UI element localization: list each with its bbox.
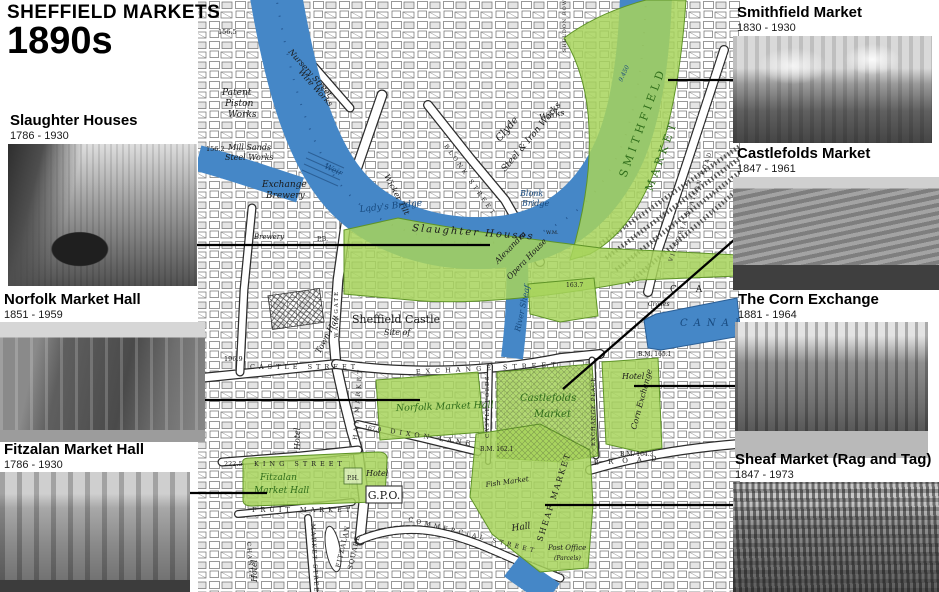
castle-folds-label: CASTLE FOLDS — [485, 375, 491, 438]
norfolk-market-dates: 1851 - 1959 — [4, 309, 63, 321]
spot-156-2: 156.2 — [206, 145, 225, 153]
fitzalan-market-dates: 1786 - 1930 — [4, 459, 63, 471]
pb-label: P.B. — [317, 236, 328, 243]
corn-exchange-dates: 1881 - 1964 — [738, 309, 797, 321]
hotel-label-3: Hotel — [293, 427, 302, 451]
slaughter-houses-dates: 1786 - 1930 — [10, 130, 69, 142]
fitzalan-market-photo — [0, 472, 190, 592]
map-content: PatentPistonWorks Mill SandsSteel Works … — [198, 0, 748, 592]
spot-196-9: 196.9 — [224, 355, 243, 363]
page-subtitle: 1890s — [7, 20, 113, 63]
sheldon-row-label: SHELDON ROW — [562, 0, 568, 52]
castlefolds-market-dates: 1847 - 1961 — [737, 163, 796, 175]
slaughter-houses-title: Slaughter Houses — [10, 112, 138, 129]
smithfield-market-dates: 1830 - 1930 — [737, 22, 796, 34]
mill-sands-label: Mill SandsSteel Works — [225, 143, 274, 162]
sheffield-castle-label: Sheffield Castle — [352, 313, 440, 326]
castlefolds-market-title: Castlefolds Market — [737, 145, 870, 162]
fruit-market-label: FRUIT MARKET — [252, 506, 354, 514]
corn-exchange-photo — [735, 322, 928, 458]
ph-label: P.H. — [347, 475, 359, 482]
slaughter-houses-photo — [8, 144, 197, 286]
police-offices-block — [268, 289, 324, 330]
hotel-label-1: Hotel — [621, 372, 645, 381]
norfolk-market-title: Norfolk Market Hall — [4, 291, 141, 308]
hotel-label-2: Hotel — [365, 469, 389, 478]
spot-163-7: 163.7 — [566, 282, 583, 289]
wm-label: W.M. — [546, 230, 559, 236]
smithfield-market-photo — [733, 36, 932, 143]
smithfield-market-title: Smithfield Market — [737, 4, 862, 21]
sheffield-markets-infographic: PatentPistonWorks Mill SandsSteel Works … — [0, 0, 939, 592]
castle-street-label: CASTLE STREET — [250, 363, 359, 371]
slaughter-houses-annex — [528, 278, 598, 322]
spot-156-5: 156.5 — [218, 28, 237, 36]
waingate-label: WAINGATE — [334, 290, 340, 338]
sheaf-market-title: Sheaf Market (Rag and Tag) — [735, 451, 931, 468]
king-street-label: KING STREET — [254, 460, 346, 468]
sheaf-market-dates: 1847 - 1973 — [735, 469, 794, 481]
corn-exchange-title: The Corn Exchange — [738, 291, 879, 308]
norfolk-market-photo — [0, 322, 205, 442]
brewery-label: Brewery — [253, 233, 285, 241]
bm-165-label: B.M. 165.1 — [638, 351, 671, 358]
gpo-label: G.P.O. — [368, 489, 400, 502]
site-of-label: Site of — [384, 328, 412, 337]
king-street-number: 222.5 — [224, 460, 243, 468]
exchange-place-label: EXCHANGE PLACE — [591, 377, 597, 446]
exchange-brewery-label: ExchangeBrewery — [261, 180, 307, 201]
bm-162-label: B.M. 162.1 — [480, 446, 513, 453]
castlefolds-market-photo — [733, 177, 939, 290]
sheaf-market-photo — [733, 482, 939, 592]
fitzalan-market-title: Fitzalan Market Hall — [4, 441, 144, 458]
